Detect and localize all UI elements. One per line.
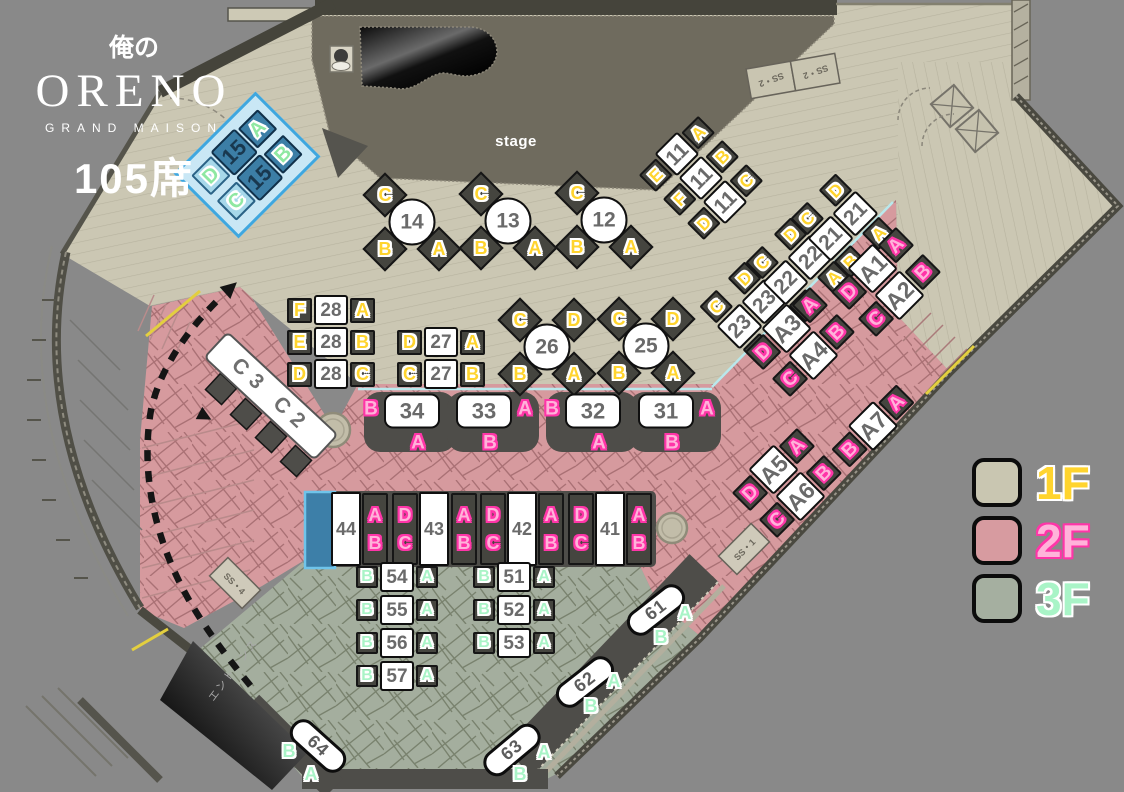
seat-table-64-A: A (305, 765, 318, 783)
seat-table-27-D[interactable]: D (397, 330, 422, 355)
seat-letter-F: F (670, 190, 689, 209)
logo: 俺の ORENO GRAND MAISON 105席 (22, 28, 246, 206)
legend-swatch-1f (972, 458, 1022, 507)
table-number-44[interactable]: 44 (331, 492, 361, 566)
table-number-27[interactable]: 27 (424, 327, 458, 357)
seat-table-52-B[interactable]: B (473, 599, 495, 621)
seat-table-55-B[interactable]: B (356, 599, 378, 621)
table-number-25[interactable]: 25 (623, 323, 670, 370)
table-52[interactable]: B52A (473, 595, 555, 625)
seat-letter-D: D (293, 365, 306, 383)
seat-letter-B: B (825, 321, 848, 344)
seat-table-32-A: A (592, 434, 606, 453)
seat-table-34-B: B (364, 400, 378, 419)
seat-letter-A: A (667, 364, 680, 382)
table-number-12[interactable]: 12 (581, 197, 628, 244)
seat-letter-A: A (568, 365, 581, 383)
legend-swatch-3f (972, 574, 1022, 623)
table-27[interactable]: D27AC27B (397, 327, 485, 389)
seat-letter-C: C (766, 508, 789, 531)
seat-letter-B: B (571, 238, 584, 256)
seat-letter-B: B (478, 569, 490, 585)
table-53[interactable]: B53A (473, 628, 555, 658)
table-number-31[interactable]: 31 (638, 394, 694, 429)
logo-kanji: 俺の (22, 28, 246, 64)
seat-letter-D: D (575, 506, 588, 524)
table-number-28[interactable]: 28 (314, 295, 348, 325)
seat-letter-C: C (379, 186, 392, 204)
seat-letter-A: A (421, 569, 433, 585)
table-number-42[interactable]: 42 (507, 492, 537, 566)
table-number-27[interactable]: 27 (424, 359, 458, 389)
seat-letter-B: B (361, 635, 373, 651)
seat-letter-C: C (736, 170, 757, 191)
seat-letter-D: D (568, 311, 581, 329)
seat-letter-A: A (433, 240, 446, 258)
seat-letter-E: E (646, 165, 666, 185)
seat-letter-A: A (545, 506, 558, 524)
seat-table-53-B[interactable]: B (473, 632, 495, 654)
seat-table-61-B: B (655, 628, 668, 646)
table-number-52[interactable]: 52 (497, 595, 531, 625)
seat-letter-C: C (356, 365, 369, 383)
table-51[interactable]: B51A (473, 562, 555, 592)
seat-letter-B: B (356, 333, 369, 351)
seat-letter-A: A (529, 239, 542, 257)
seat-letter-C: C (797, 208, 818, 229)
seat-table-64-B: B (283, 742, 296, 760)
seat-letter-B: B (478, 635, 490, 651)
seat-table-28-A[interactable]: A (350, 298, 375, 323)
seat-letter-D: D (752, 340, 775, 363)
legend-label-3f: 3F (1036, 576, 1090, 622)
seat-letter-B: B (271, 142, 295, 166)
seat-letter-A: A (421, 635, 433, 651)
seat-letter-B: B (545, 534, 558, 552)
seat-letter-D: D (487, 506, 500, 524)
seat-table-57-B[interactable]: B (356, 665, 378, 687)
seat-letter-A: A (884, 234, 907, 257)
seat-letter-A: A (538, 569, 550, 585)
table-number-34[interactable]: 34 (384, 394, 440, 429)
table-number-53[interactable]: 53 (497, 628, 531, 658)
seat-table-56-A[interactable]: A (416, 632, 438, 654)
seat-letter-B: B (633, 534, 646, 552)
seat-letter-F: F (294, 301, 305, 319)
seat-table-55-A[interactable]: A (416, 599, 438, 621)
seat-letter-A: A (688, 122, 709, 143)
seat-count: 105席 (22, 145, 246, 206)
seat-letter-A: A (421, 602, 433, 618)
seat-letter-C: C (514, 311, 527, 329)
table-number-26[interactable]: 26 (524, 324, 571, 371)
seats-41-dc[interactable]: DC (568, 493, 594, 565)
seat-letter-A: A (421, 668, 433, 684)
seat-letter-D: D (693, 213, 714, 234)
seat-letter-A: A (356, 301, 369, 319)
table-number-14[interactable]: 14 (389, 199, 436, 246)
table-number-54[interactable]: 54 (380, 562, 414, 592)
seat-table-57-A[interactable]: A (416, 665, 438, 687)
seat-table-31-A: A (700, 400, 714, 419)
seat-letter-D: D (739, 481, 762, 504)
seat-table-28-D[interactable]: D (287, 362, 312, 387)
seat-table-28-E[interactable]: E (287, 330, 312, 355)
table-number-33[interactable]: 33 (456, 394, 512, 429)
seats-44-ab[interactable]: AB (362, 493, 388, 565)
table-56[interactable]: B56A (356, 628, 438, 658)
legend-row-2f: 2F (972, 516, 1090, 565)
seat-letter-B: B (812, 462, 835, 485)
seat-letter-A: A (885, 391, 908, 414)
seat-table-28-B[interactable]: B (350, 330, 375, 355)
seat-letter-B: B (712, 146, 733, 167)
table-label-63[interactable]: 63 (478, 718, 546, 781)
seat-table-51-A[interactable]: A (533, 566, 555, 588)
seat-letter-A: A (245, 117, 269, 141)
table-57[interactable]: B57A (356, 661, 438, 691)
seat-table-56-B[interactable]: B (356, 632, 378, 654)
seat-table-28-C[interactable]: C (350, 362, 375, 387)
seat-letter-C: C (779, 367, 802, 390)
table-number-32[interactable]: 32 (565, 394, 621, 429)
seat-letter-D: D (825, 180, 846, 201)
seat-table-31-B: B (665, 434, 679, 453)
seat-letter-B: B (514, 365, 527, 383)
seat-table-52-A[interactable]: A (533, 599, 555, 621)
seat-letter-A: A (369, 506, 382, 524)
seat-letter-A: A (538, 635, 550, 651)
table-number-51[interactable]: 51 (497, 562, 531, 592)
seat-letter-A: A (798, 294, 821, 317)
seat-letter-C: C (865, 307, 888, 330)
seat-table-27-A[interactable]: A (460, 330, 485, 355)
table-number-56[interactable]: 56 (380, 628, 414, 658)
seat-table-27-B[interactable]: B (460, 362, 485, 387)
table-number-13[interactable]: 13 (485, 198, 532, 245)
seat-letter-A: A (458, 506, 471, 524)
seat-letter-C: C (752, 252, 773, 273)
seat-letter-D: D (403, 333, 416, 351)
seat-letter-B: B (475, 239, 488, 257)
seat-letter-B: B (361, 668, 373, 684)
seat-letter-B: B (361, 602, 373, 618)
floor-legend: 1F 2F 3F (972, 458, 1090, 623)
seat-table-51-B[interactable]: B (473, 566, 495, 588)
floor-plan: SS・2 SS・2 SS・4 SS・1 エントランス stage D15AC15… (0, 0, 1124, 792)
table-a7[interactable]: BA7A (828, 381, 919, 472)
seat-table-32-B: B (545, 400, 559, 419)
table-28[interactable]: F28AE28BD28C (287, 295, 375, 389)
seat-letter-C: C (475, 185, 488, 203)
seat-letter-E: E (293, 333, 305, 351)
seats-41-ab[interactable]: AB (626, 493, 652, 565)
seat-table-28-F[interactable]: F (287, 298, 312, 323)
seat-letter-C: C (487, 534, 500, 552)
table-11[interactable]: E11AF11BD11C (636, 113, 766, 243)
seat-letter-A: A (625, 238, 638, 256)
seats-42-ab[interactable]: AB (538, 493, 564, 565)
seat-letter-B: B (911, 261, 934, 284)
seat-letter-B: B (466, 365, 479, 383)
seat-letter-B: B (838, 438, 861, 461)
legend-row-1f: 1F (972, 458, 1090, 507)
table-number-43[interactable]: 43 (419, 492, 449, 566)
table-number-41[interactable]: 41 (595, 492, 625, 566)
seat-table-33-A: A (518, 400, 532, 419)
seat-letter-B: B (369, 534, 382, 552)
seat-letter-B: B (458, 534, 471, 552)
legend-row-3f: 3F (972, 574, 1090, 623)
seat-table-61-A: A (679, 604, 692, 622)
seat-table-63-A: A (538, 743, 551, 761)
table-54[interactable]: B54A (356, 562, 438, 592)
logo-name: ORENO (22, 64, 246, 118)
legend-label-2f: 2F (1036, 518, 1090, 564)
seat-letter-C: C (706, 296, 727, 317)
seat-letter-B: B (379, 240, 392, 258)
seat-table-27-C[interactable]: C (397, 362, 422, 387)
seat-table-34-A: A (411, 434, 425, 453)
seat-letter-D: D (838, 280, 861, 303)
seat-letter-A: A (538, 602, 550, 618)
seat-letter-B: B (613, 364, 626, 382)
seat-letter-D: D (667, 310, 680, 328)
seat-table-54-A[interactable]: A (416, 566, 438, 588)
logo-subtitle: GRAND MAISON (22, 121, 246, 135)
seat-letter-A: A (466, 333, 479, 351)
seat-letter-C: C (399, 534, 412, 552)
seats-42-dc[interactable]: DC (480, 493, 506, 565)
table-number-55[interactable]: 55 (380, 595, 414, 625)
seats-43-dc[interactable]: DC (392, 493, 418, 565)
table-number-57[interactable]: 57 (380, 661, 414, 691)
legend-label-1f: 1F (1036, 460, 1090, 506)
seat-letter-C: C (575, 534, 588, 552)
legend-swatch-2f (972, 516, 1022, 565)
seat-table-53-A[interactable]: A (533, 632, 555, 654)
seat-letter-A: A (633, 506, 646, 524)
seat-letter-A: A (785, 435, 808, 458)
table-number-28[interactable]: 28 (314, 327, 348, 357)
seat-letter-C: C (613, 310, 626, 328)
seat-letter-C: C (571, 184, 584, 202)
seat-table-54-B[interactable]: B (356, 566, 378, 588)
seat-letter-D: D (399, 506, 412, 524)
seats-43-ab[interactable]: AB (451, 493, 477, 565)
table-a5-a6[interactable]: DA5ACA6B (728, 424, 845, 541)
seat-letter-B: B (361, 569, 373, 585)
seat-letter-C: C (403, 365, 416, 383)
seat-table-63-B: B (514, 765, 527, 783)
table-55[interactable]: B55A (356, 595, 438, 625)
seat-table-33-B: B (483, 434, 497, 453)
seat-table-62-B: B (585, 697, 598, 715)
seat-letter-B: B (478, 602, 490, 618)
table-number-28[interactable]: 28 (314, 359, 348, 389)
seat-table-62-A: A (608, 672, 621, 690)
